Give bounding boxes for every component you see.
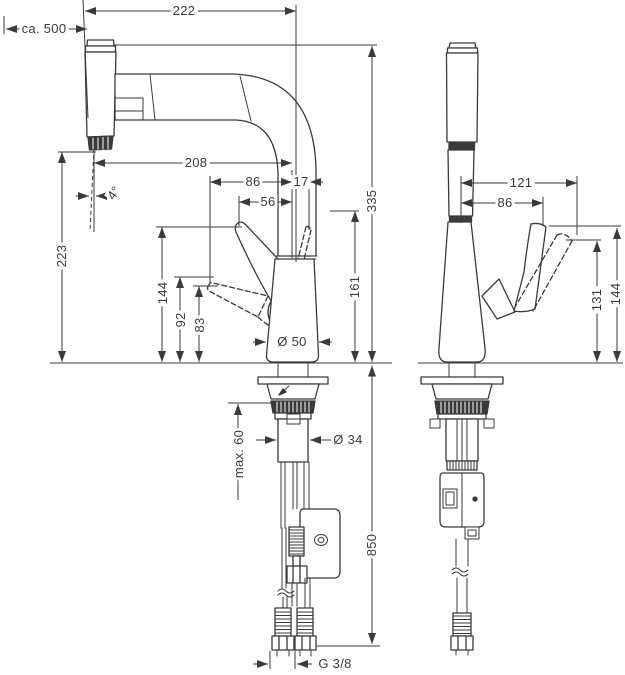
front-ring-band xyxy=(449,143,475,150)
front-valve-tab xyxy=(465,527,479,539)
hose-coupling-neck xyxy=(293,556,300,566)
dim-56-label: 56 xyxy=(258,195,277,209)
dim-850-label: 850 xyxy=(365,532,379,559)
dim-121-label: 121 xyxy=(508,176,535,190)
front-view-faucet xyxy=(421,43,572,655)
dim-208-label: 208 xyxy=(183,156,210,170)
faucet-line-art xyxy=(0,0,625,675)
spray-head-cap xyxy=(87,40,114,46)
front-collar xyxy=(438,414,486,419)
front-cap xyxy=(449,43,476,48)
mounting-flange xyxy=(258,377,328,384)
connector-stubs xyxy=(277,650,311,656)
front-handle-mount xyxy=(482,279,515,319)
front-valve-dot xyxy=(473,497,477,501)
front-spray-body xyxy=(447,53,479,142)
dim-86-front-label: 86 xyxy=(495,196,514,210)
spray-axis-dashed xyxy=(90,148,94,232)
front-handle-blade xyxy=(514,223,546,311)
dim-144-front-label: 144 xyxy=(609,281,623,308)
base-neck-lines xyxy=(278,364,308,378)
flange-base xyxy=(267,384,319,399)
front-hose-break xyxy=(452,568,468,576)
dim-17-label: 17 xyxy=(291,175,310,189)
connector-nut-left xyxy=(272,636,294,650)
spray-head-cap-rim xyxy=(86,46,116,52)
dim-max60-label: max. 60 xyxy=(232,428,246,480)
spray-head-body xyxy=(85,52,116,137)
dim-83-label: 83 xyxy=(193,315,207,334)
front-connector-nut xyxy=(451,636,473,650)
connector-nut-right xyxy=(295,636,316,650)
front-flange xyxy=(421,377,503,384)
dim-ca500-label: ca. 500 xyxy=(20,22,69,36)
supply-connector-ribs xyxy=(275,612,313,633)
dim-223-label: 223 xyxy=(55,243,69,270)
shank xyxy=(278,419,308,462)
front-base-cone xyxy=(439,222,485,362)
front-neck-lines xyxy=(449,364,475,377)
front-cap-rim xyxy=(448,48,478,53)
spout xyxy=(115,74,316,256)
front-valve-square xyxy=(443,489,457,508)
front-hose-upper xyxy=(456,539,468,566)
aerator xyxy=(88,136,113,150)
dim-86-side-label: 86 xyxy=(243,175,262,189)
dim-92-label: 92 xyxy=(174,310,188,329)
front-connector-stubs xyxy=(456,650,468,655)
front-flange-base xyxy=(432,384,492,399)
technical-drawing-page: 222 ca. 500 208 86 17 56 4° 223 144 92 8… xyxy=(0,0,625,675)
dim-o50-label: Ø 50 xyxy=(275,335,308,349)
dim-g38-label: G 3/8 xyxy=(316,657,353,671)
front-hose-lower xyxy=(457,578,467,613)
hose-coupling-nut xyxy=(287,566,307,583)
dim-161-label: 161 xyxy=(348,274,362,301)
dim-o34-label: Ø 34 xyxy=(331,433,364,447)
dim-222-label: 222 xyxy=(171,4,198,18)
dim-131-label: 131 xyxy=(590,287,604,314)
dim-335-label: 335 xyxy=(365,188,379,215)
dim-144-side-label: 144 xyxy=(156,280,170,307)
shank-clip xyxy=(287,414,300,424)
